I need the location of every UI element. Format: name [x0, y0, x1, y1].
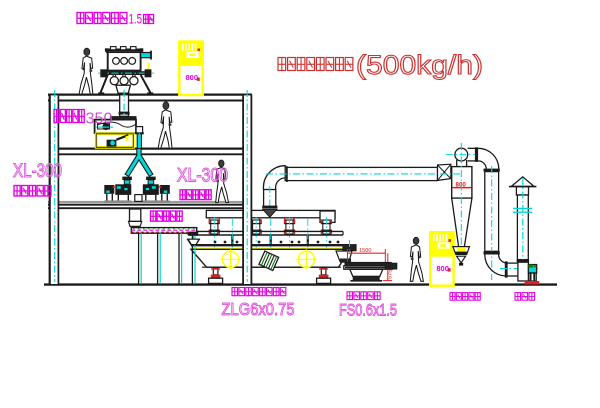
svg-text:800: 800 [186, 73, 199, 82]
svg-text:ZLG6x0.75: ZLG6x0.75 [222, 299, 295, 319]
svg-text:(500kg/h): (500kg/h) [356, 50, 483, 80]
svg-text:350: 350 [86, 111, 113, 128]
svg-text:1500: 1500 [359, 248, 371, 254]
svg-text:575: 575 [388, 270, 394, 279]
svg-text:1.5: 1.5 [129, 12, 143, 27]
svg-text:800: 800 [436, 264, 449, 273]
svg-text:XL-300: XL-300 [177, 165, 228, 187]
svg-text:XL-300: XL-300 [13, 161, 62, 182]
svg-text:FS0.6x1.5: FS0.6x1.5 [339, 301, 397, 320]
